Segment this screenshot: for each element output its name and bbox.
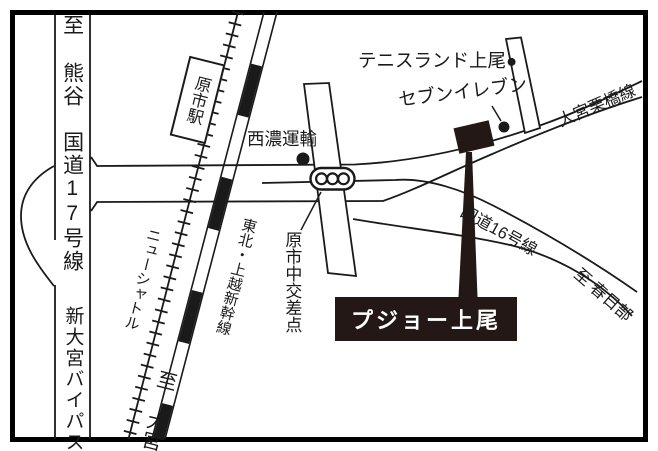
- intersection-label: 原市中交差点: [282, 231, 300, 341]
- tennis-land-label: テニスランド上尾●: [358, 51, 517, 71]
- seino-transport-label: 西濃運輸: [247, 130, 317, 149]
- seven-eleven-dot: [499, 122, 510, 133]
- traffic-signal: [311, 168, 355, 190]
- destination-box: プジョー上尾: [335, 297, 517, 341]
- road-break-tick-top: [91, 157, 98, 167]
- destination-label: プジョー上尾: [351, 303, 501, 335]
- intersection-pointer-line: [301, 192, 321, 230]
- route17-label: 至 熊谷 国道17号線: [60, 14, 83, 224]
- seven-eleven-pointer-line: [492, 106, 501, 121]
- haraichi-station-label: 原市駅: [180, 73, 215, 127]
- access-map: 至 熊谷 国道17号線 新大宮バイパス 原市駅 ニューシャトル 東北・上越新幹線…: [0, 0, 658, 451]
- route17-ramp-curve: [21, 166, 54, 286]
- peugeot-building-marker: [454, 120, 495, 153]
- map-linework: [0, 0, 658, 451]
- road-break-tick-bottom: [91, 202, 98, 212]
- shin-omiya-bypass-label: 新大宮バイパス: [62, 306, 83, 436]
- seino-dot: [297, 153, 310, 166]
